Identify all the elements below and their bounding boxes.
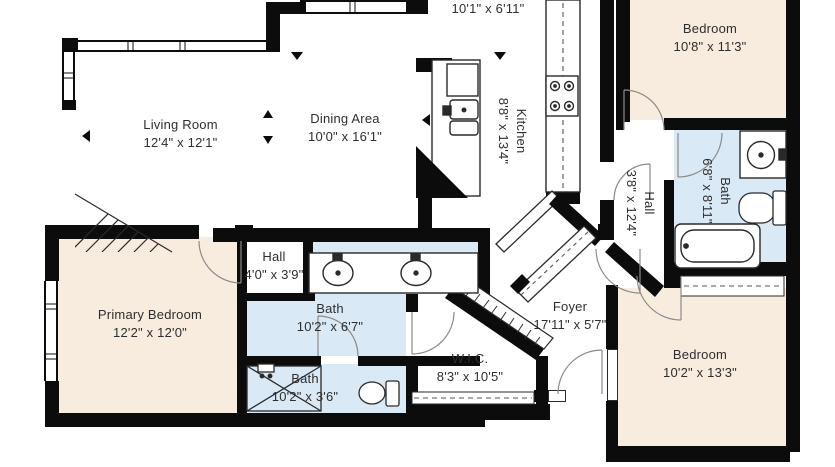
stairs-icon: [70, 192, 210, 252]
room-name: Bath: [716, 131, 734, 251]
room-name: Hall: [640, 143, 658, 263]
room-dims: 6'8" x 8'11": [698, 131, 716, 251]
round-sink-icon: [740, 131, 786, 178]
room-label-bath-small: Bath 10'2" x 3'6": [248, 370, 362, 406]
room-label-foyer: Foyer 17'11" x 5'7": [503, 298, 637, 334]
room-dims: 8'3" x 10'5": [408, 368, 532, 386]
room-dims: 10'0" x 16'1": [270, 128, 420, 146]
room-label-dining-area: Dining Area 10'0" x 16'1": [270, 110, 420, 146]
room-dims: 3'8" x 12'4": [622, 143, 640, 263]
room-name: Hall: [242, 248, 306, 266]
room-name: Foyer: [503, 298, 637, 316]
room-name: Living Room: [103, 116, 258, 134]
room-dims: 12'2" x 12'0": [60, 324, 240, 342]
room-label-bath-primary: Bath 10'2" x 6'7": [268, 300, 392, 336]
room-dims: 10'1" x 6'11": [408, 0, 568, 18]
room-name: Dining Area: [270, 110, 420, 128]
diagonal-closet: [496, 191, 614, 302]
room-name: Primary Bedroom: [60, 306, 240, 324]
room-label-bath-right: Bath 6'8" x 8'11": [698, 131, 734, 251]
room-dims: 8'8" x 13'4": [494, 71, 512, 191]
room-label-hall-center: Hall 4'0" x 3'9": [242, 248, 306, 284]
room-label-living-room: Living Room 12'4" x 12'1": [103, 116, 258, 152]
stove-icon: [546, 76, 578, 116]
room-dims: 10'8" x 11'3": [628, 38, 792, 56]
room-name: Bedroom: [628, 20, 792, 38]
room-name: Bath: [268, 300, 392, 318]
room-name: Kitchen: [512, 71, 530, 191]
double-vanity-sink-icon: [309, 253, 478, 293]
room-name: Bedroom: [612, 346, 788, 364]
room-dims: 10'2" x 13'3": [612, 364, 788, 382]
room-name: W.I.C.: [408, 350, 532, 368]
room-label-kitchen: Kitchen 8'8" x 13'4": [494, 71, 530, 191]
floor-plan: Breakfast Room 10'1" x 6'11" Living Room…: [0, 0, 835, 467]
room-dims: 10'2" x 6'7": [268, 318, 392, 336]
room-name: Bath: [248, 370, 362, 388]
room-label-hall-right: Hall 3'8" x 12'4": [622, 143, 658, 263]
closet-shelf-icon: [681, 276, 784, 296]
room-label-wic: W.I.C. 8'3" x 10'5": [408, 350, 532, 386]
room-label-bedroom-top-right: Bedroom 10'8" x 11'3": [628, 20, 792, 56]
room-dims: 17'11" x 5'7": [503, 316, 637, 334]
room-dims: 10'2" x 3'6": [248, 388, 362, 406]
closet-shelf-icon: [412, 392, 534, 404]
toilet-icon: [359, 381, 399, 406]
room-label-breakfast: Breakfast Room 10'1" x 6'11": [408, 0, 568, 18]
room-dims: 12'4" x 12'1": [103, 134, 258, 152]
kitchen-counter: [546, 0, 580, 192]
room-dims: 4'0" x 3'9": [242, 266, 306, 284]
room-label-primary-bedroom: Primary Bedroom 12'2" x 12'0": [60, 306, 240, 342]
toilet-icon: [739, 191, 786, 225]
room-label-bedroom-bottom-right: Bedroom 10'2" x 13'3": [612, 346, 788, 382]
